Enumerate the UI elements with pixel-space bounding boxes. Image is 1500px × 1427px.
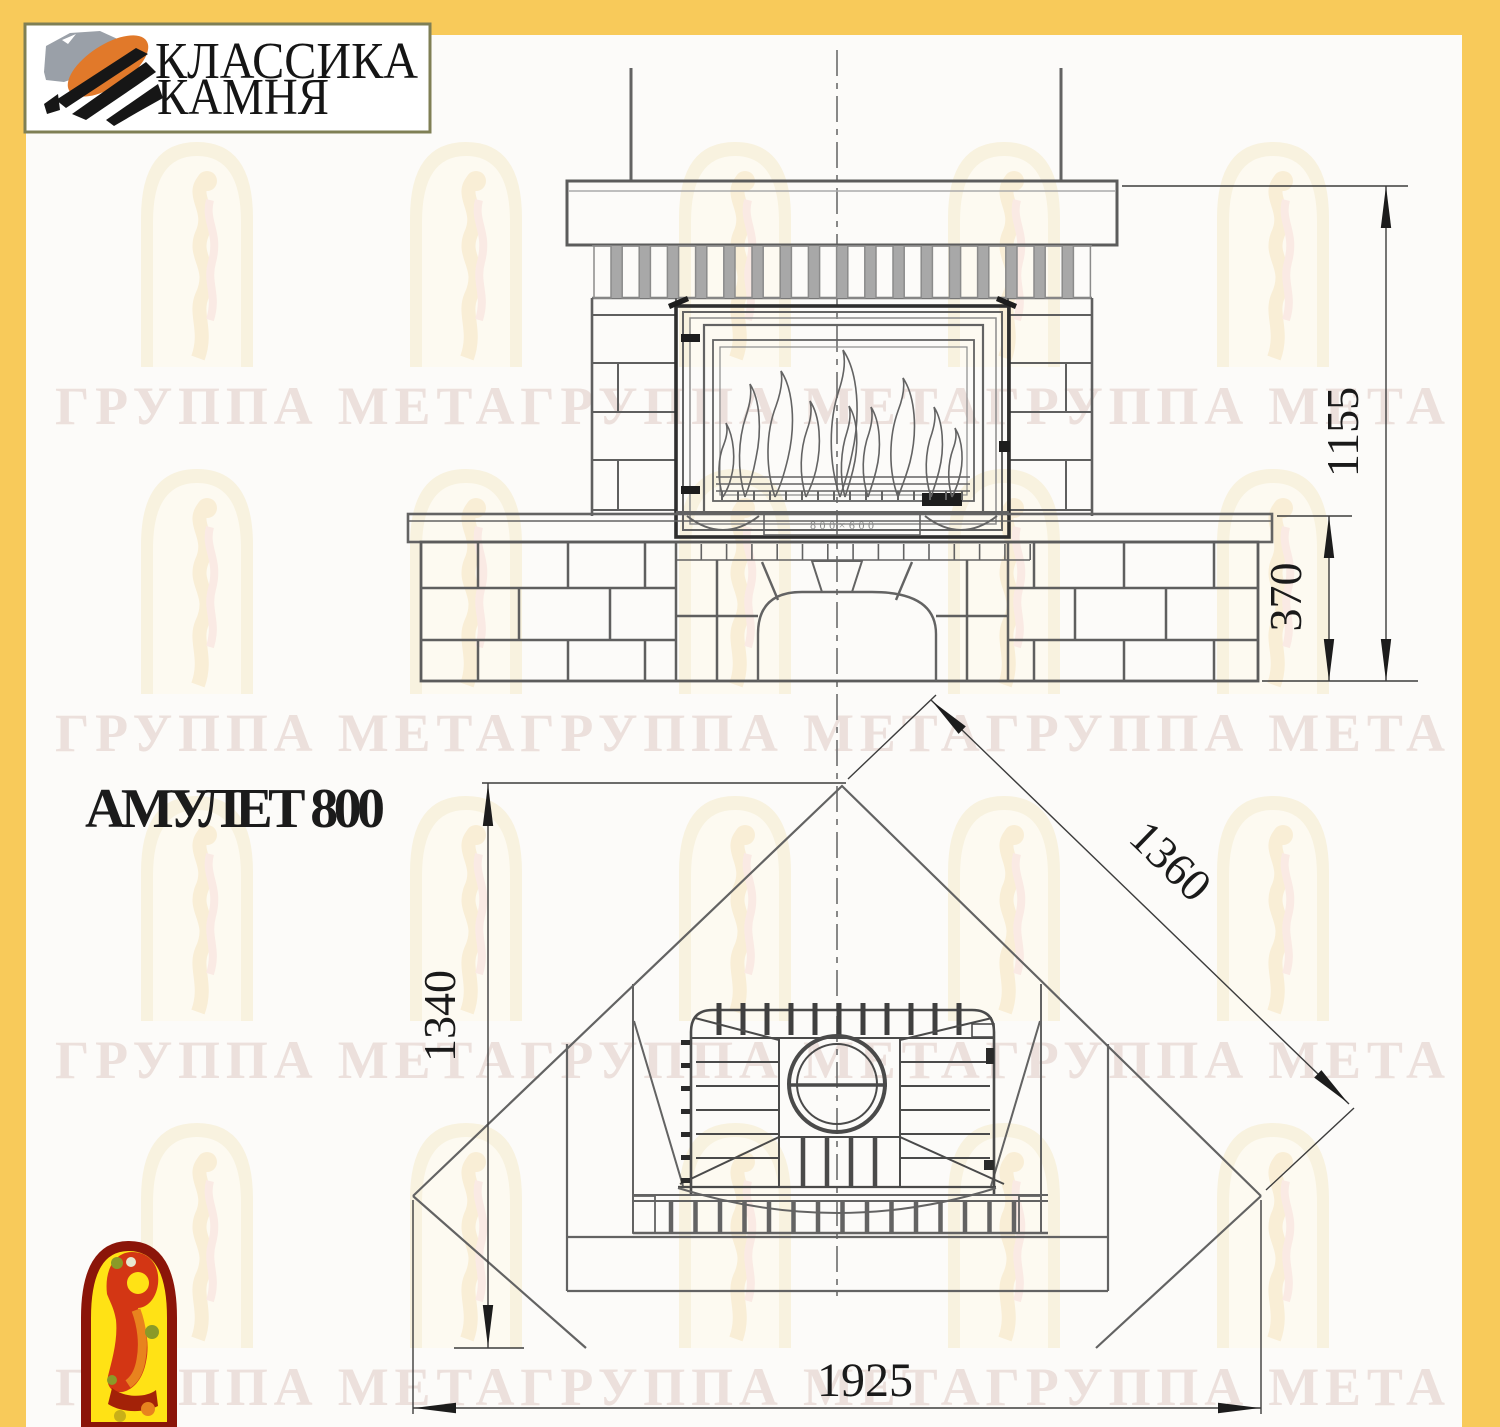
svg-text:1925: 1925 <box>817 1354 913 1407</box>
svg-text:АМУЛЕТ 800: АМУЛЕТ 800 <box>85 778 385 840</box>
svg-text:1340: 1340 <box>414 970 465 1062</box>
svg-text:ГРУППА МЕТАГРУППА МЕТАГРУППА М: ГРУППА МЕТАГРУППА МЕТАГРУППА МЕТА <box>55 703 1445 763</box>
svg-text:800×600: 800×600 <box>810 518 874 532</box>
svg-text:370: 370 <box>1260 563 1311 632</box>
svg-text:1155: 1155 <box>1317 387 1368 477</box>
svg-text:КАМНЯ: КАМНЯ <box>157 69 329 126</box>
